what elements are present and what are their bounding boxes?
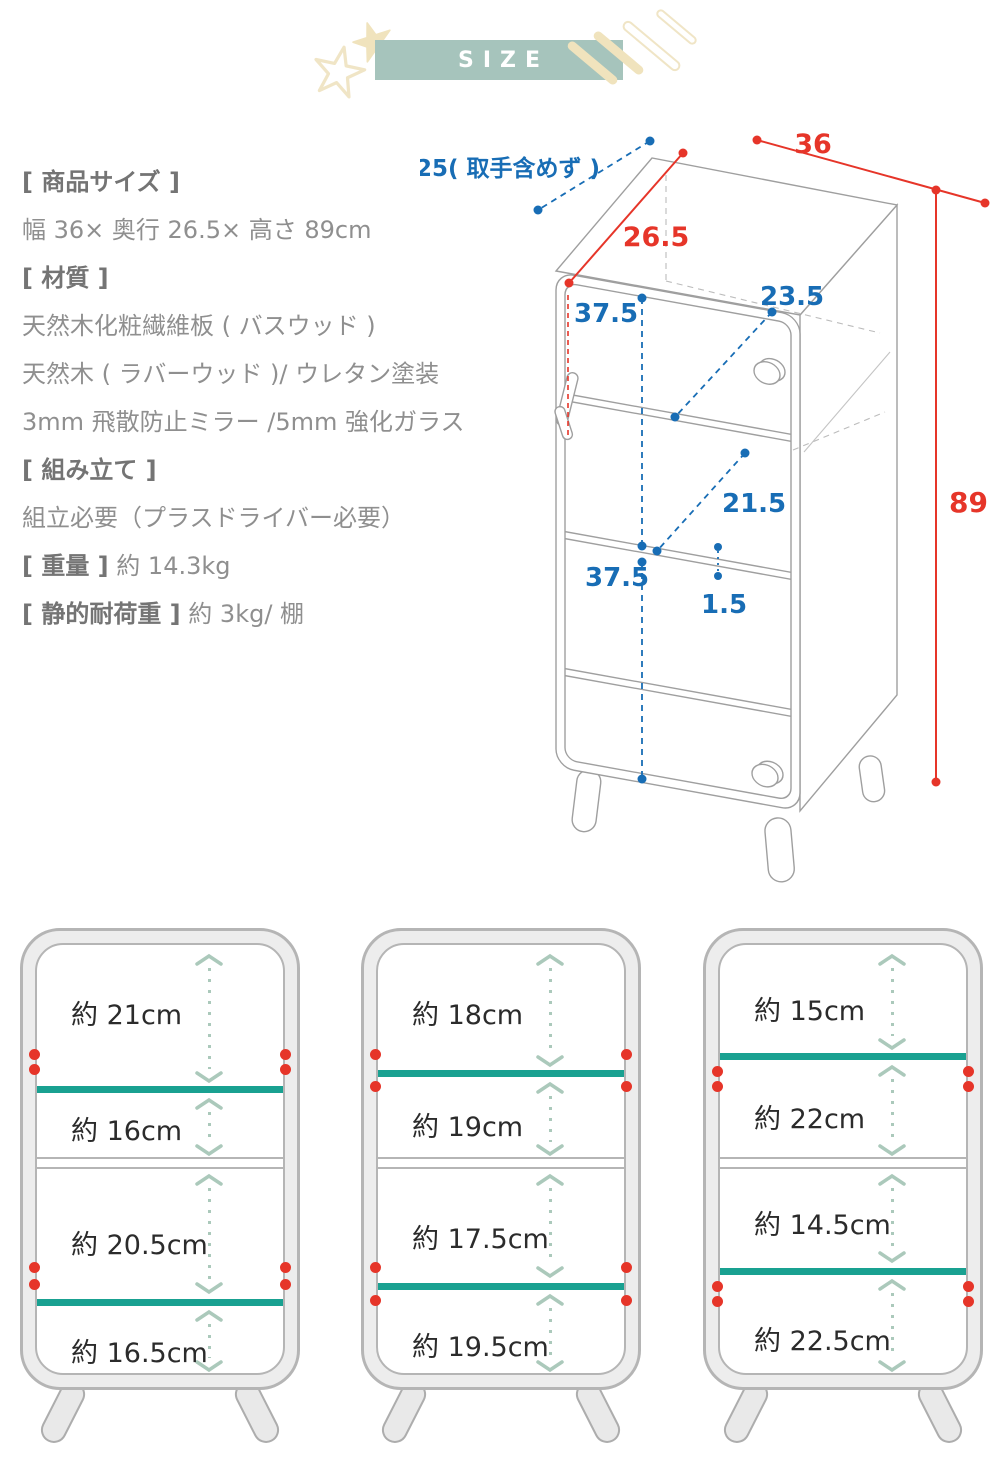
- shelf-pin-dot: [370, 1081, 381, 1092]
- chevron-down-icon: [194, 1144, 224, 1157]
- spec-load-value: 約 3kg/ 棚: [188, 600, 304, 628]
- section-height-label: 約 19cm: [412, 1105, 523, 1144]
- shelf-pin-dot: [712, 1081, 723, 1092]
- movable-shelf: [720, 1268, 966, 1275]
- shelf-pin-dot: [370, 1049, 381, 1060]
- chevron-down-icon: [535, 1144, 565, 1157]
- shelf-pin-dot: [963, 1281, 974, 1292]
- shelf-pin-dot: [963, 1081, 974, 1092]
- dim-top-depth-note: 25( 取手含めず ): [420, 155, 600, 182]
- section-height-label: 約 20.5cm: [71, 1223, 208, 1262]
- dim-lower-inner-label: 37.5: [585, 563, 649, 593]
- section-height-label: 約 16cm: [71, 1109, 182, 1148]
- spec-assembly-value: 組立必要（プラスドライバー必要）: [22, 504, 405, 532]
- shelf-pin-dot: [621, 1081, 632, 1092]
- cabinet-front-outline: 約 18cm 約 19cm 約 17.5cm 約 19.5cm: [361, 928, 641, 1390]
- shelf-pin-dot: [29, 1279, 40, 1290]
- chevron-down-icon: [877, 1038, 907, 1051]
- chevron-up-icon: [535, 1293, 565, 1306]
- chevron-down-icon: [194, 1071, 224, 1084]
- spec-assembly-heading: [ 組み立て ]: [22, 456, 157, 484]
- fixed-shelf: [37, 1157, 283, 1169]
- shelf-pin-dot: [621, 1262, 632, 1273]
- cabinet-front-outline: 約 21cm 約 16cm 約 20.5cm 約 16.5cm: [20, 928, 300, 1390]
- section-height-label: 約 15cm: [754, 989, 865, 1028]
- dim-mid-shelf-depth-label: 21.5: [722, 489, 786, 519]
- dim-top-shelf-depth-label: 23.5: [760, 282, 824, 312]
- chevron-up-icon: [877, 953, 907, 966]
- height-arrow: [534, 1081, 566, 1157]
- chevron-down-icon: [877, 1360, 907, 1373]
- spec-load-heading: [ 静的耐荷重 ]: [22, 600, 181, 628]
- shelf-pin-dot: [370, 1262, 381, 1273]
- shelf-pin-dot: [29, 1064, 40, 1075]
- chevron-up-icon: [535, 1173, 565, 1186]
- front-view-panel-2: 約 18cm 約 19cm 約 17.5cm 約 19.5cm: [361, 928, 641, 1448]
- size-page: SIZE [ 商品サイズ ] 幅 36× 奥行 26.5× 高さ 89cm [ …: [0, 0, 1000, 1469]
- shelf-pin-dot: [712, 1296, 723, 1307]
- movable-shelf: [37, 1086, 283, 1093]
- shelf-pin-dot: [280, 1049, 291, 1060]
- section-height-label: 約 17.5cm: [412, 1217, 549, 1256]
- chevron-up-icon: [535, 1081, 565, 1094]
- dim-upper-inner-label: 37.5: [574, 299, 638, 329]
- chevron-up-icon: [877, 1278, 907, 1291]
- shelf-pin-dot: [963, 1066, 974, 1077]
- cabinet-interior: 約 21cm 約 16cm 約 20.5cm 約 16.5cm: [35, 943, 285, 1375]
- size-banner-title: SIZE: [449, 48, 549, 73]
- section-height-label: 約 14.5cm: [754, 1203, 891, 1242]
- shelf-pin-dot: [712, 1281, 723, 1292]
- cabinet-interior: 約 15cm 約 22cm 約 14.5cm 約 22.5cm: [718, 943, 968, 1375]
- spec-material-2: 天然木 ( ラバーウッド )/ ウレタン塗装: [22, 360, 439, 388]
- chevron-up-icon: [194, 1173, 224, 1186]
- fixed-shelf: [378, 1157, 624, 1169]
- height-arrow: [876, 953, 908, 1051]
- movable-shelf: [37, 1299, 283, 1306]
- chevron-down-icon: [877, 1144, 907, 1157]
- shelf-pin-dot: [963, 1296, 974, 1307]
- dim-height-label: 89: [949, 486, 988, 519]
- chevron-up-icon: [877, 1173, 907, 1186]
- section-height-label: 約 18cm: [412, 993, 523, 1032]
- shelf-pin-dot: [370, 1295, 381, 1306]
- shelf-pin-dot: [29, 1049, 40, 1060]
- shelf-pin-dot: [280, 1262, 291, 1273]
- shelf-pin-dot: [280, 1279, 291, 1290]
- front-view-panel-1: 約 21cm 約 16cm 約 20.5cm 約 16.5cm: [20, 928, 300, 1448]
- height-arrow: [876, 1064, 908, 1157]
- chevron-down-icon: [877, 1251, 907, 1264]
- cabinet-front-outline: 約 15cm 約 22cm 約 14.5cm 約 22.5cm: [703, 928, 983, 1390]
- fixed-shelf: [720, 1157, 966, 1169]
- movable-shelf: [378, 1070, 624, 1077]
- spec-weight-heading: [ 重量 ]: [22, 552, 109, 580]
- spec-weight-value: 約 14.3kg: [116, 552, 230, 580]
- height-arrow: [534, 953, 566, 1068]
- spec-size-value: 幅 36× 奥行 26.5× 高さ 89cm: [22, 216, 371, 244]
- cabinet-body: [554, 158, 897, 883]
- height-arrow: [193, 953, 225, 1084]
- dim-width-label: 36: [794, 129, 832, 160]
- section-height-label: 約 22cm: [754, 1097, 865, 1136]
- shelf-pin-dot: [621, 1295, 632, 1306]
- section-height-label: 約 19.5cm: [412, 1325, 549, 1364]
- height-arrow: [193, 1097, 225, 1157]
- movable-shelf: [720, 1053, 966, 1060]
- slash-outline-decoration-icon: [654, 7, 698, 46]
- chevron-up-icon: [194, 1097, 224, 1110]
- shelf-pin-dot: [621, 1049, 632, 1060]
- spec-size-heading: [ 商品サイズ ]: [22, 168, 180, 196]
- shelf-pin-dot: [29, 1262, 40, 1273]
- front-view-panel-3: 約 15cm 約 22cm 約 14.5cm 約 22.5cm: [703, 928, 983, 1448]
- chevron-down-icon: [535, 1055, 565, 1068]
- shelf-pin-dot: [280, 1064, 291, 1075]
- movable-shelf: [378, 1283, 624, 1290]
- chevron-up-icon: [194, 953, 224, 966]
- shelf-pin-dot: [712, 1066, 723, 1077]
- section-height-label: 約 21cm: [71, 993, 182, 1032]
- chevron-down-icon: [194, 1282, 224, 1295]
- chevron-up-icon: [535, 953, 565, 966]
- dim-shelf-thickness-label: 1.5: [701, 590, 747, 620]
- cabinet-3d-diagram: 36 26.5 89 25( 取手含めず ) 37.5 23.5 21.5 37…: [420, 100, 1000, 900]
- chevron-up-icon: [194, 1309, 224, 1322]
- spec-material-3: 3mm 飛散防止ミラー /5mm 強化ガラス: [22, 408, 465, 436]
- chevron-down-icon: [535, 1266, 565, 1279]
- dim-depth-label: 26.5: [623, 222, 690, 253]
- section-height-label: 約 22.5cm: [754, 1319, 891, 1358]
- cabinet-interior: 約 18cm 約 19cm 約 17.5cm 約 19.5cm: [376, 943, 626, 1375]
- spec-material-1: 天然木化粧繊維板 ( バスウッド ): [22, 312, 376, 340]
- section-height-label: 約 16.5cm: [71, 1331, 208, 1370]
- spec-material-heading: [ 材質 ]: [22, 264, 109, 292]
- chevron-up-icon: [877, 1064, 907, 1077]
